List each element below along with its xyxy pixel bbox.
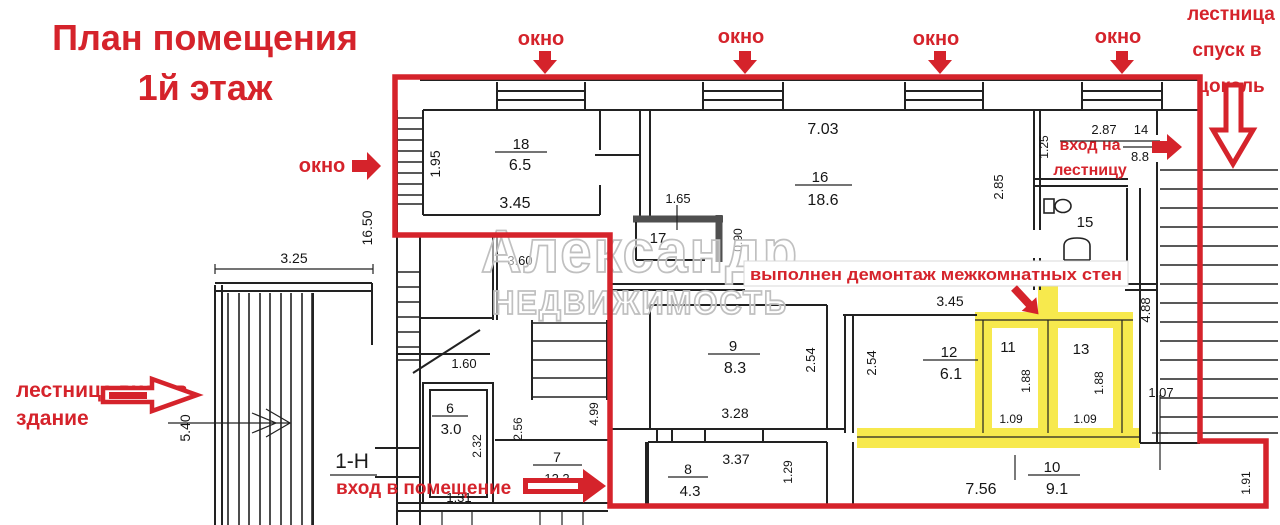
dim-label: 3.45 [499,195,530,212]
right-staircase-treads [1160,170,1278,433]
dim-label: 8.3 [724,360,746,377]
basement-label-line2: спуск в [1192,40,1261,61]
title-line1: План помещения [52,17,358,58]
building-entrance-line2: здание [16,407,89,430]
dim-label: 3.45 [936,293,963,309]
window-arrow-down-icon-2 [733,51,757,74]
stairs-entrance-line2: лестницу [1053,162,1127,179]
watermark-line2: НЕДВИЖИМОСТЬ [492,284,788,321]
premises-entrance-arrow-stripe [528,483,578,489]
dim-label: 4.88 [1138,297,1153,322]
stairs-entrance-line1: вход на [1059,137,1120,154]
dim-label: 1.88 [1092,371,1106,395]
yellow-wall-bottom [857,428,1140,448]
dim-label: 2.32 [470,434,484,458]
dim-label: 8.8 [1131,149,1149,164]
dim-label: 16 [812,169,829,186]
dim-label: 1.07 [1148,385,1173,400]
dim-label: 1.65 [665,191,690,206]
top-windows [497,82,1162,110]
stairs-entrance-callout: вход на лестницу [1053,134,1182,179]
building-entrance-callout: лестница вход в здание [16,379,197,430]
toilet-bowl-icon [1055,200,1071,213]
page-title: План помещения 1й этаж [52,17,358,108]
building-entrance-arrow-stripe [109,392,147,399]
title-line2: 1й этаж [138,67,273,108]
dim-label: 1.60 [451,356,476,371]
dim-label: 1.09 [1073,412,1097,426]
stairs-entrance-arrow-right-icon [1152,134,1182,160]
window-arrow-down-icon-4 [1110,51,1134,74]
window-arrow-down-icon-3 [928,51,952,74]
window-hatch-upper [397,118,423,204]
window-label-3: окно [913,28,960,50]
window-label-4: окно [1095,26,1142,48]
window-label-2: окно [718,26,765,48]
dim-label: 1.29 [781,460,795,484]
dim-label: 7.03 [807,121,838,138]
dim-label: 7.56 [965,481,996,498]
demolition-note-text: выполнен демонтаж межкомнатных стен [750,265,1122,284]
dim-label: 11 [1000,339,1016,356]
dim-label: 14 [1134,122,1148,137]
dim-label: 5.40 [177,414,193,441]
dim-label: 2.56 [511,417,525,441]
dim-label: 18.6 [807,192,838,209]
dim-label: 3.25 [280,250,307,266]
dim-label: 2.85 [991,174,1006,199]
dim-label: 4.99 [587,402,601,426]
window-arrow-down-icon-1 [533,51,557,74]
dim-label: 3.28 [721,405,748,421]
window-arrow-right-icon [352,152,381,180]
middle-staircase-treads [532,323,607,397]
dim-label: 8 [684,461,692,477]
dim-label: 1.09 [999,412,1023,426]
dim-label: 1.88 [1019,369,1033,393]
sink-icon [1064,238,1090,260]
floor-plan-drawing: 1.95186.53.4516.503.255.407.031618.62.85… [0,0,1280,525]
basement-label-line1: лестница [1187,4,1275,25]
dim-label: 16.50 [359,210,375,245]
dim-label: 1.91 [1239,471,1253,495]
dim-label: 7 [553,449,561,465]
window-hatch-lower [397,272,420,360]
floor-plan-page: 1.95186.53.4516.503.255.407.031618.62.85… [0,0,1280,525]
dim-label: 15 [1077,214,1094,231]
premises-entrance-label: вход в помещение [336,478,511,499]
left-staircase-treads [228,293,312,525]
dim-label: 6.5 [509,157,531,174]
dim-label: 3.37 [722,451,749,467]
unit-label: 1-Н [335,450,369,473]
dim-label: 18 [513,136,530,153]
dim-label: 13 [1073,341,1090,358]
dim-label: 10 [1044,459,1061,476]
dim-label: 9 [729,338,737,355]
dim-label: 9.1 [1046,481,1068,498]
dim-label: 2.54 [864,350,879,375]
dim-label: 1.95 [427,150,443,177]
dim-label: 6.1 [940,366,962,383]
dim-label: 6 [446,400,454,416]
dim-label: 2.87 [1091,122,1116,137]
yellow-wall-right [1113,312,1133,433]
window-callouts: окно окно окно окно окно [299,26,1142,180]
dim-label: 3.0 [441,421,462,438]
window-label-1: окно [518,28,565,50]
dim-label: 1.25 [1037,135,1051,159]
dim-label: 12 [941,344,958,361]
dim-label: 4.3 [680,483,701,500]
window-label-5: окно [299,155,346,177]
toilet-tank-icon [1044,199,1054,213]
dim-label: 2.54 [803,347,818,372]
